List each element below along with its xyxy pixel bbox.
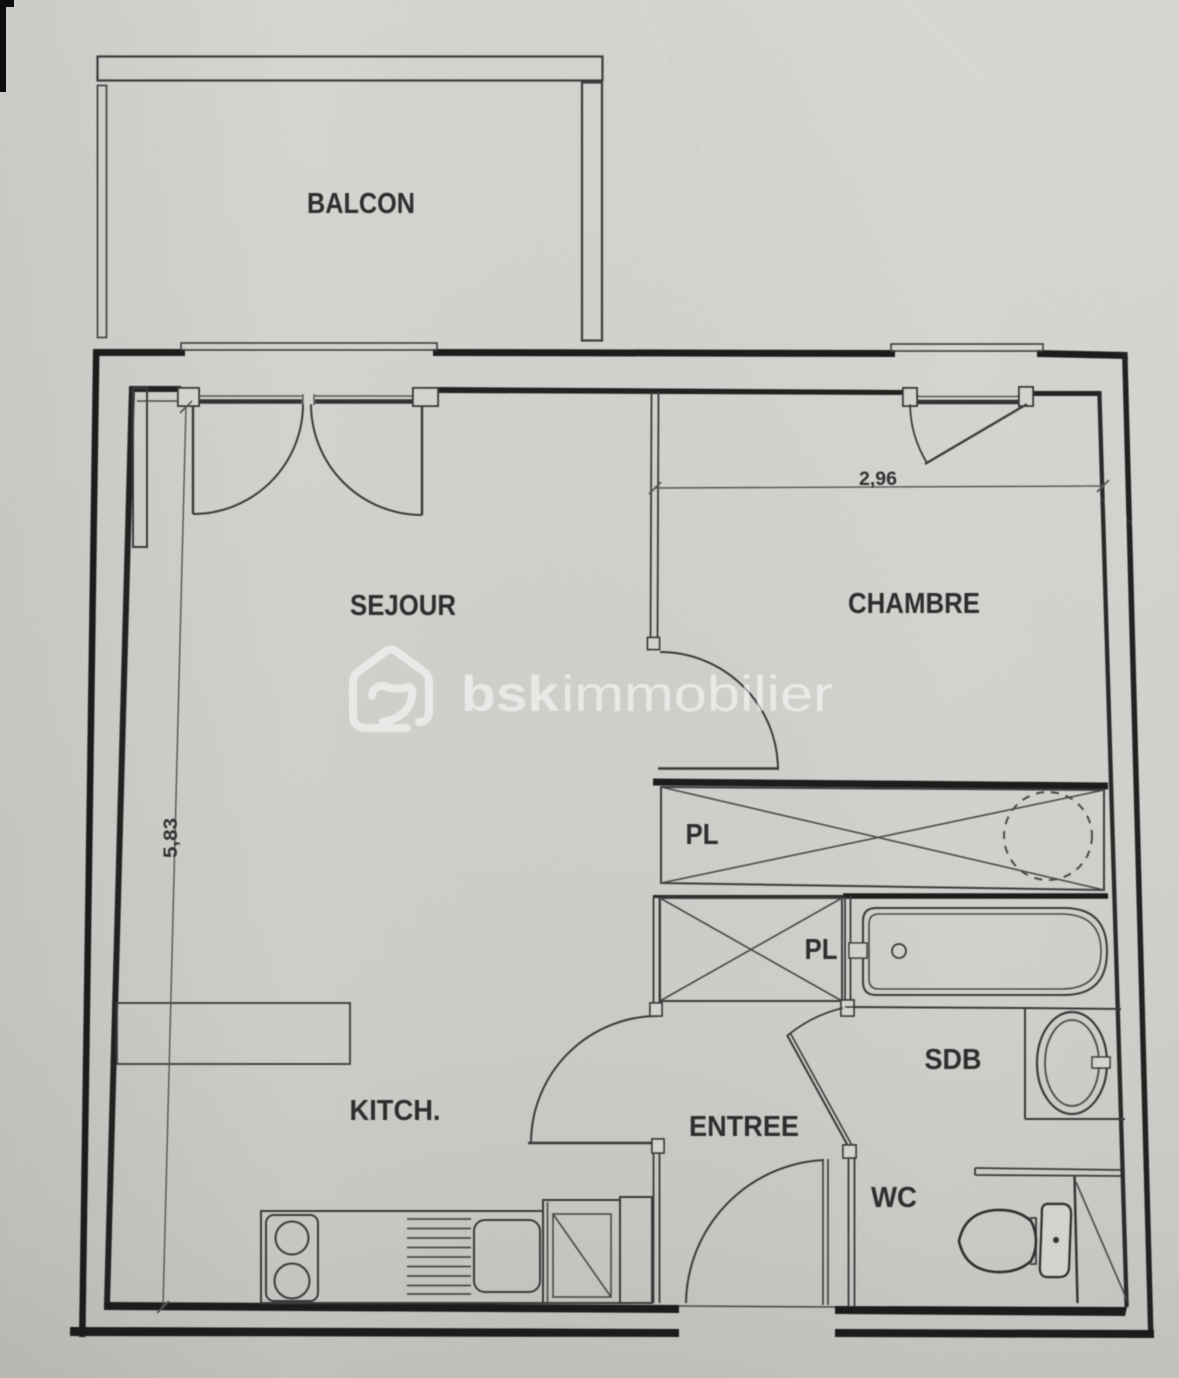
svg-text:immobilier: immobilier xyxy=(561,666,833,722)
svg-text:BALCON: BALCON xyxy=(307,188,415,220)
svg-text:ENTREE: ENTREE xyxy=(689,1111,799,1143)
svg-text:bsk: bsk xyxy=(461,666,559,722)
svg-text:SDB: SDB xyxy=(925,1044,982,1076)
svg-text:PL: PL xyxy=(686,819,719,851)
svg-text:SEJOUR: SEJOUR xyxy=(350,590,456,622)
svg-text:CHAMBRE: CHAMBRE xyxy=(848,588,980,620)
svg-text:2,96: 2,96 xyxy=(859,469,897,490)
svg-text:PL: PL xyxy=(805,934,838,966)
svg-text:5,83: 5,83 xyxy=(161,818,182,858)
svg-text:KITCH.: KITCH. xyxy=(350,1095,441,1127)
svg-text:WC: WC xyxy=(871,1182,917,1214)
